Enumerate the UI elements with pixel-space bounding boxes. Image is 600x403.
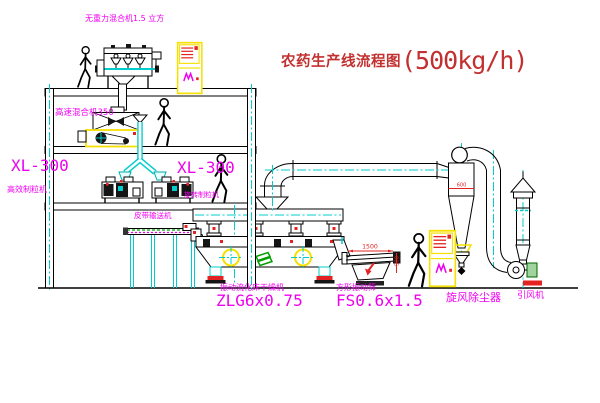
label-screen-model: FS0.6x1.5 (336, 293, 423, 309)
title-capacity: (500kg/h) (401, 46, 527, 75)
column-right (248, 84, 256, 290)
title-text: 农药生产线流程图 (281, 54, 401, 70)
fan-motor (527, 263, 537, 277)
worker-top-floor (78, 47, 91, 88)
screen-length-text: 1500 (362, 244, 378, 251)
fan-base (523, 281, 542, 286)
control-cabinet-top (178, 43, 202, 94)
label-dryer-model: ZLG6x0.75 (216, 293, 303, 309)
fluid-bed-dryer (191, 205, 344, 285)
floor-slab-middle (45, 147, 256, 154)
label-high-speed-mixer: 高速混合机350 (55, 109, 114, 118)
label-belt-conveyor: 皮带输送机 (134, 212, 172, 220)
worker-middle-floor (155, 99, 170, 145)
screen-dimension-length: 1500 (348, 244, 393, 253)
label-fan: 引风机 (517, 292, 544, 301)
worker-ground (409, 234, 426, 286)
fan-pipe-and-stack (465, 147, 542, 288)
label-granulator-left-name: 高效制粒机 (7, 186, 47, 194)
rotary-outlet (458, 267, 466, 275)
floor-slab-top (45, 89, 256, 97)
exhaust-stack (511, 172, 535, 265)
process-flow-drawing: 1500 500 (0, 0, 600, 403)
control-cabinet-ground (430, 231, 456, 287)
granulator-left-machine (102, 177, 143, 203)
granulator-right-machine (152, 177, 193, 203)
mixer-discharge-pipe (119, 84, 127, 110)
spring-mounts (207, 221, 341, 236)
screen-height-text: 500 (395, 256, 401, 266)
label-granulator-right-name: 旋转制粒机 (184, 192, 219, 199)
label-cyclone: 旋风除尘器 (446, 292, 501, 303)
label-gravity-free-mixer: 无重力混合机1.5 立方 (85, 15, 164, 23)
gravity-free-mixer (95, 44, 161, 110)
exhaust-duct (256, 160, 455, 212)
drawing-title: 农药生产线流程图(500kg/h) (281, 46, 527, 75)
vibrating-screen: 1500 500 (333, 237, 401, 286)
cyclone-width-text: 600 (457, 183, 467, 189)
induced-draft-fan-drawing (508, 262, 543, 286)
dryer-feet (206, 267, 335, 284)
label-granulator-right-model: XL-300 (177, 160, 235, 176)
label-granulator-left-model: XL-300 (11, 158, 69, 174)
